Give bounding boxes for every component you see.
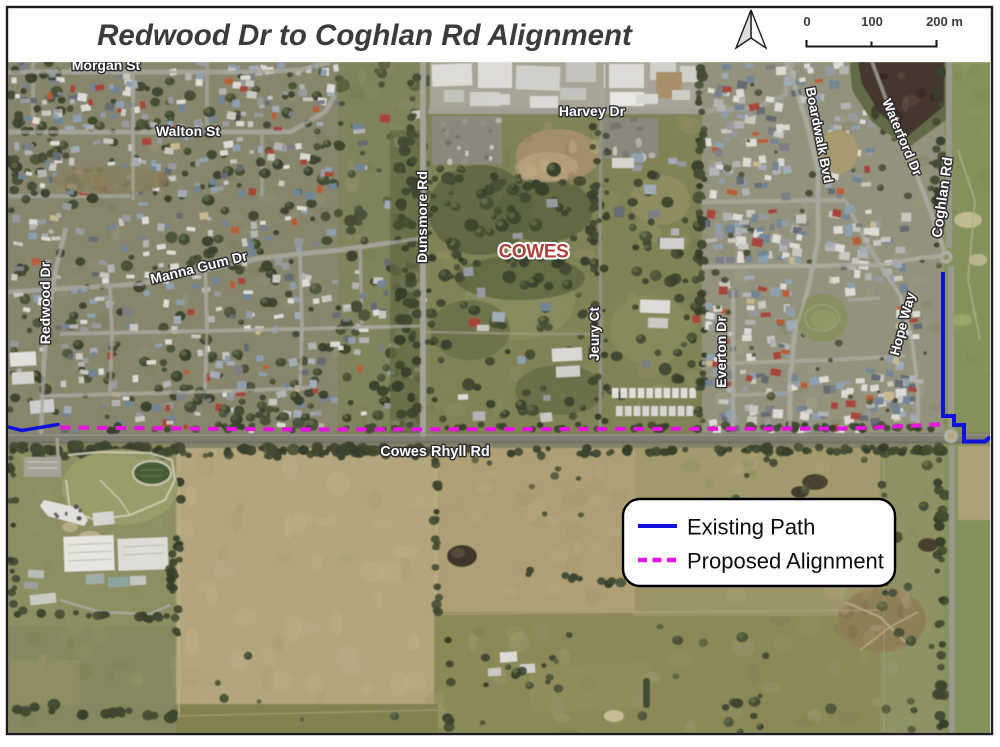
svg-text:Redwood Dr to Coghlan Rd Align: Redwood Dr to Coghlan Rd Alignment — [97, 19, 633, 52]
svg-text:Proposed Alignment: Proposed Alignment — [687, 549, 884, 574]
svg-text:Jeury Ct: Jeury Ct — [587, 306, 602, 361]
svg-text:Existing Path: Existing Path — [687, 515, 815, 540]
svg-text:Dunsmore Rd: Dunsmore Rd — [414, 171, 430, 263]
svg-text:100: 100 — [861, 14, 883, 29]
svg-text:Everton Dr: Everton Dr — [713, 316, 729, 388]
svg-text:COWES: COWES — [499, 242, 569, 263]
svg-text:0: 0 — [803, 14, 810, 29]
svg-text:Cowes Rhyll Rd: Cowes Rhyll Rd — [380, 444, 490, 460]
svg-text:200 m: 200 m — [926, 14, 963, 29]
svg-text:Redwood Dr: Redwood Dr — [37, 261, 53, 344]
svg-text:Walton St: Walton St — [156, 123, 220, 139]
svg-text:Harvey Dr: Harvey Dr — [559, 103, 626, 119]
